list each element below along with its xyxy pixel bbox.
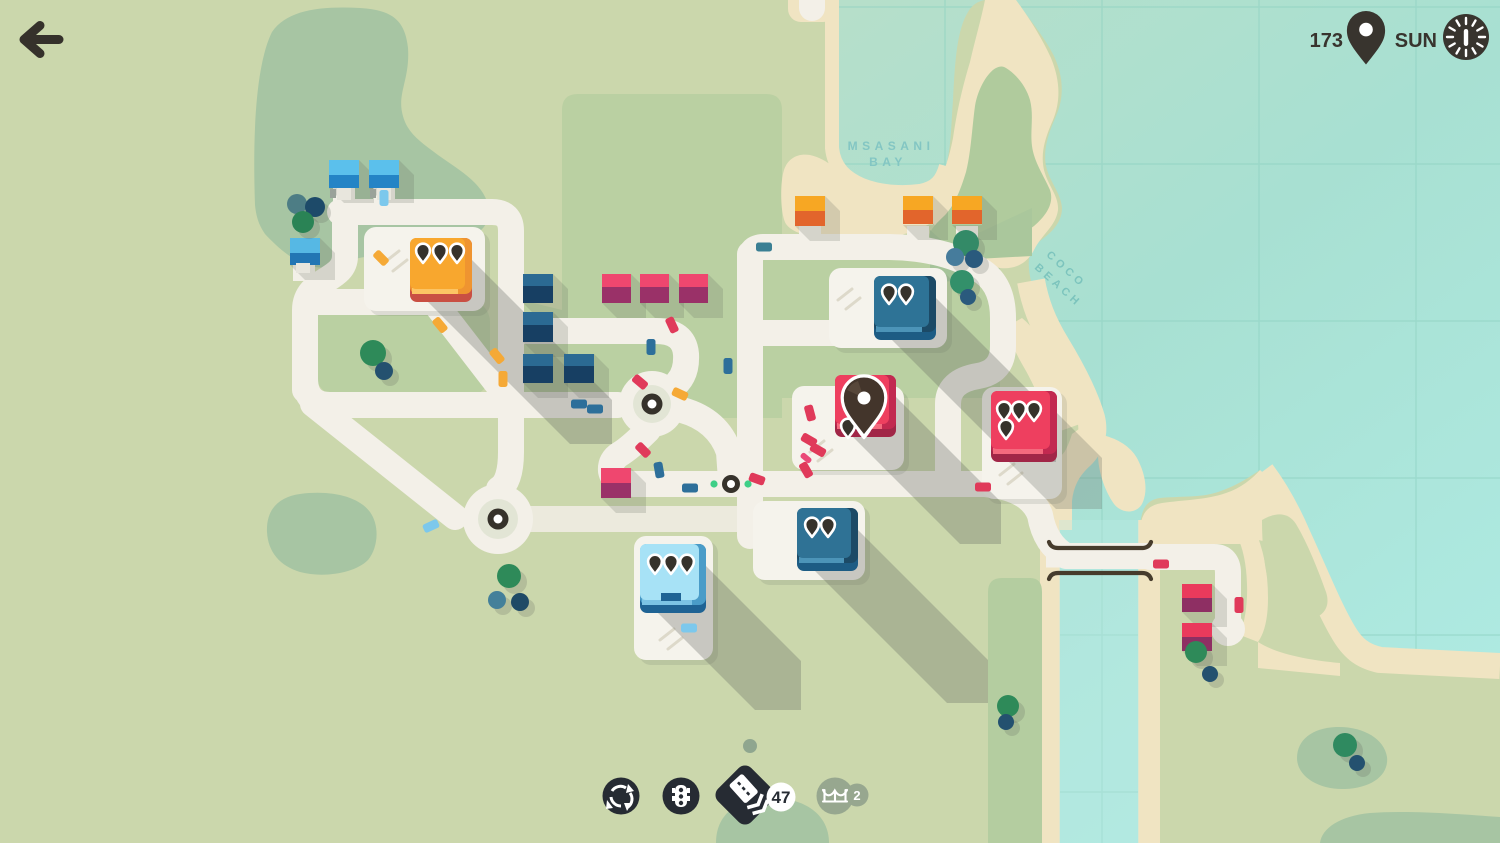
svg-text:BAY: BAY: [869, 155, 907, 169]
svg-text:MSASANI: MSASANI: [848, 139, 935, 153]
svg-text:173: 173: [1310, 30, 1343, 52]
svg-text:2: 2: [853, 788, 860, 803]
svg-text:47: 47: [772, 788, 791, 807]
svg-text:SUN: SUN: [1395, 30, 1437, 52]
